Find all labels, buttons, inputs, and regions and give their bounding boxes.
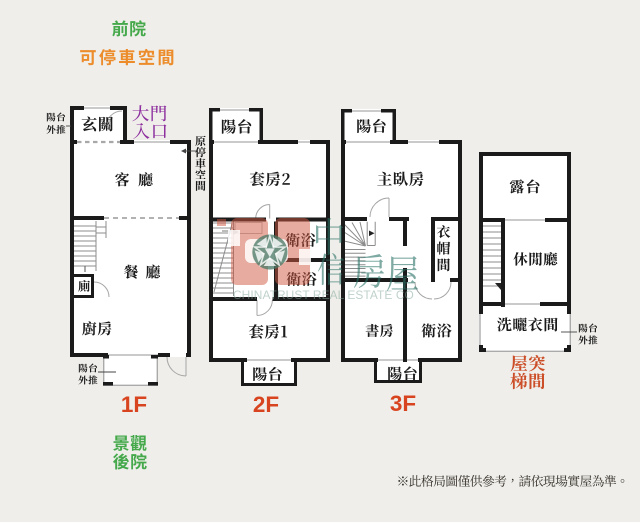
svg-text:2F: 2F bbox=[253, 392, 279, 417]
svg-text:1F: 1F bbox=[121, 392, 147, 417]
svg-text:CHINATRUST REAL ESTATE CO: CHINATRUST REAL ESTATE CO bbox=[233, 288, 414, 302]
svg-text:3F: 3F bbox=[390, 391, 416, 416]
